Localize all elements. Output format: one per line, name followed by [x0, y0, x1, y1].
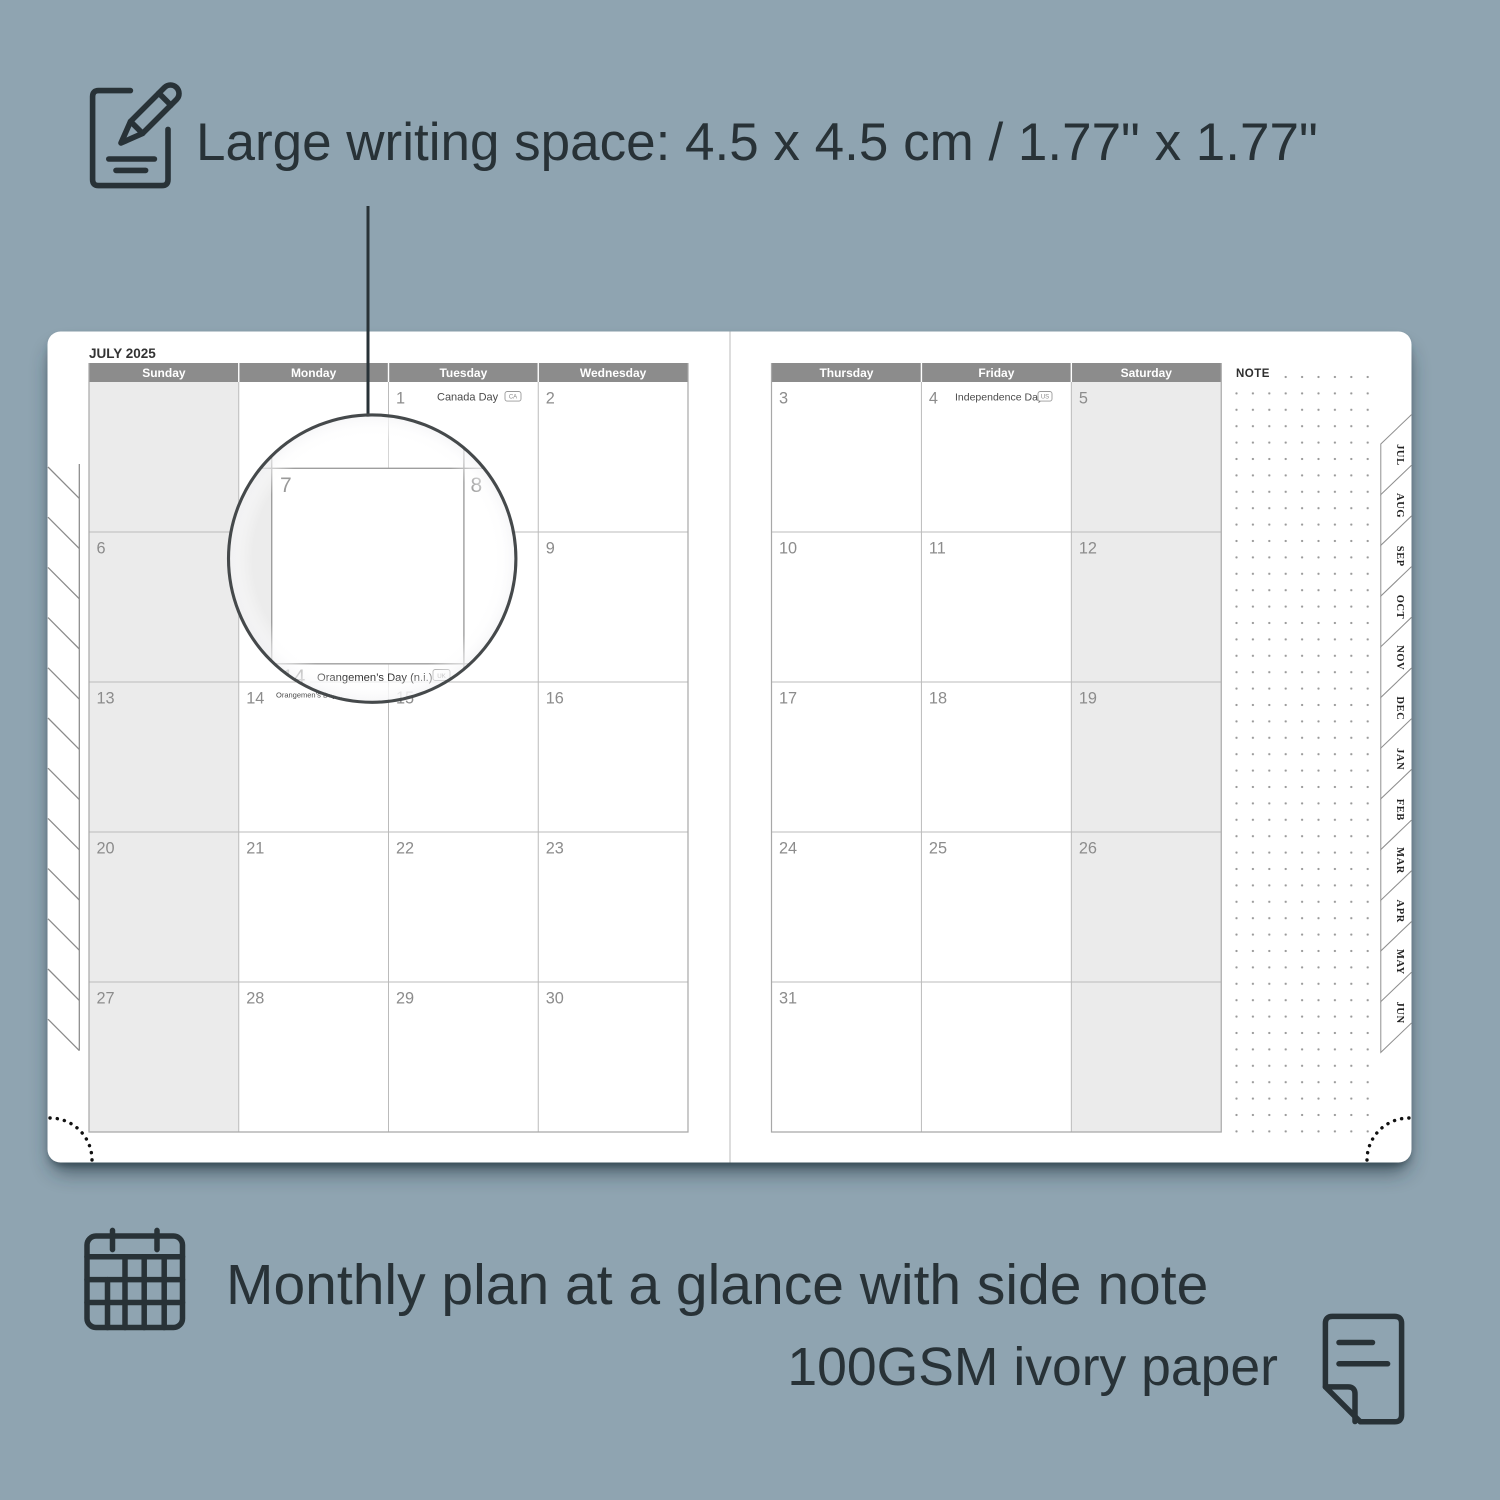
svg-text:11: 11: [929, 540, 946, 558]
svg-text:OCT: OCT: [1394, 595, 1405, 620]
svg-text:27: 27: [97, 990, 115, 1008]
svg-text:MAR: MAR: [1394, 847, 1405, 874]
svg-text:US: US: [1041, 395, 1049, 401]
svg-text:21: 21: [246, 840, 264, 858]
svg-text:28: 28: [246, 990, 264, 1008]
svg-text:JUL: JUL: [1394, 444, 1405, 466]
svg-text:Saturday: Saturday: [1121, 366, 1173, 380]
svg-text:20: 20: [97, 840, 115, 858]
svg-text:30: 30: [546, 990, 564, 1008]
svg-text:Tuesday: Tuesday: [439, 366, 487, 380]
svg-text:CA: CA: [509, 395, 517, 401]
svg-text:Canada Day: Canada Day: [437, 392, 499, 404]
svg-text:12: 12: [1079, 540, 1097, 558]
svg-text:MAY: MAY: [1394, 949, 1405, 975]
svg-text:18: 18: [929, 690, 947, 708]
svg-text:JUN: JUN: [1394, 1001, 1405, 1023]
svg-text:31: 31: [779, 990, 797, 1008]
svg-text:AUG: AUG: [1394, 493, 1405, 518]
svg-text:29: 29: [396, 990, 414, 1008]
svg-text:9: 9: [546, 540, 555, 558]
svg-text:100GSM ivory paper: 100GSM ivory paper: [787, 1338, 1278, 1397]
svg-text:4: 4: [929, 390, 938, 408]
svg-text:6: 6: [97, 540, 106, 558]
svg-text:Monthly plan at a glance with: Monthly plan at a glance with side note: [226, 1253, 1208, 1317]
svg-text:17: 17: [779, 690, 797, 708]
svg-text:APR: APR: [1394, 900, 1405, 923]
svg-text:JAN: JAN: [1394, 748, 1405, 770]
svg-text:Wednesday: Wednesday: [580, 366, 647, 380]
svg-text:16: 16: [546, 690, 564, 708]
svg-text:23: 23: [546, 840, 564, 858]
svg-text:Large writing space: 4.5 x 4.5: Large writing space: 4.5 x 4.5 cm / 1.77…: [196, 113, 1318, 172]
svg-text:1: 1: [396, 390, 405, 408]
svg-text:NOTE: NOTE: [1236, 368, 1270, 380]
svg-text:JULY 2025: JULY 2025: [89, 346, 156, 361]
svg-text:24: 24: [779, 840, 797, 858]
svg-text:22: 22: [396, 840, 414, 858]
svg-text:14: 14: [246, 690, 264, 708]
svg-text:Independence Day: Independence Day: [955, 392, 1044, 404]
svg-text:13: 13: [97, 690, 115, 708]
svg-text:DEC: DEC: [1394, 696, 1405, 720]
svg-text:10: 10: [779, 540, 797, 558]
svg-text:Thursday: Thursday: [819, 366, 873, 380]
svg-text:19: 19: [1079, 690, 1097, 708]
svg-text:25: 25: [929, 840, 947, 858]
svg-text:26: 26: [1079, 840, 1097, 858]
svg-text:Monday: Monday: [291, 366, 337, 380]
svg-text:2: 2: [546, 390, 555, 408]
svg-text:Sunday: Sunday: [142, 366, 186, 380]
svg-text:5: 5: [1079, 390, 1088, 408]
svg-text:SEP: SEP: [1394, 546, 1405, 567]
svg-text:3: 3: [779, 390, 788, 408]
svg-text:Friday: Friday: [978, 366, 1014, 380]
svg-text:FEB: FEB: [1394, 799, 1405, 821]
svg-text:NOV: NOV: [1394, 645, 1405, 670]
